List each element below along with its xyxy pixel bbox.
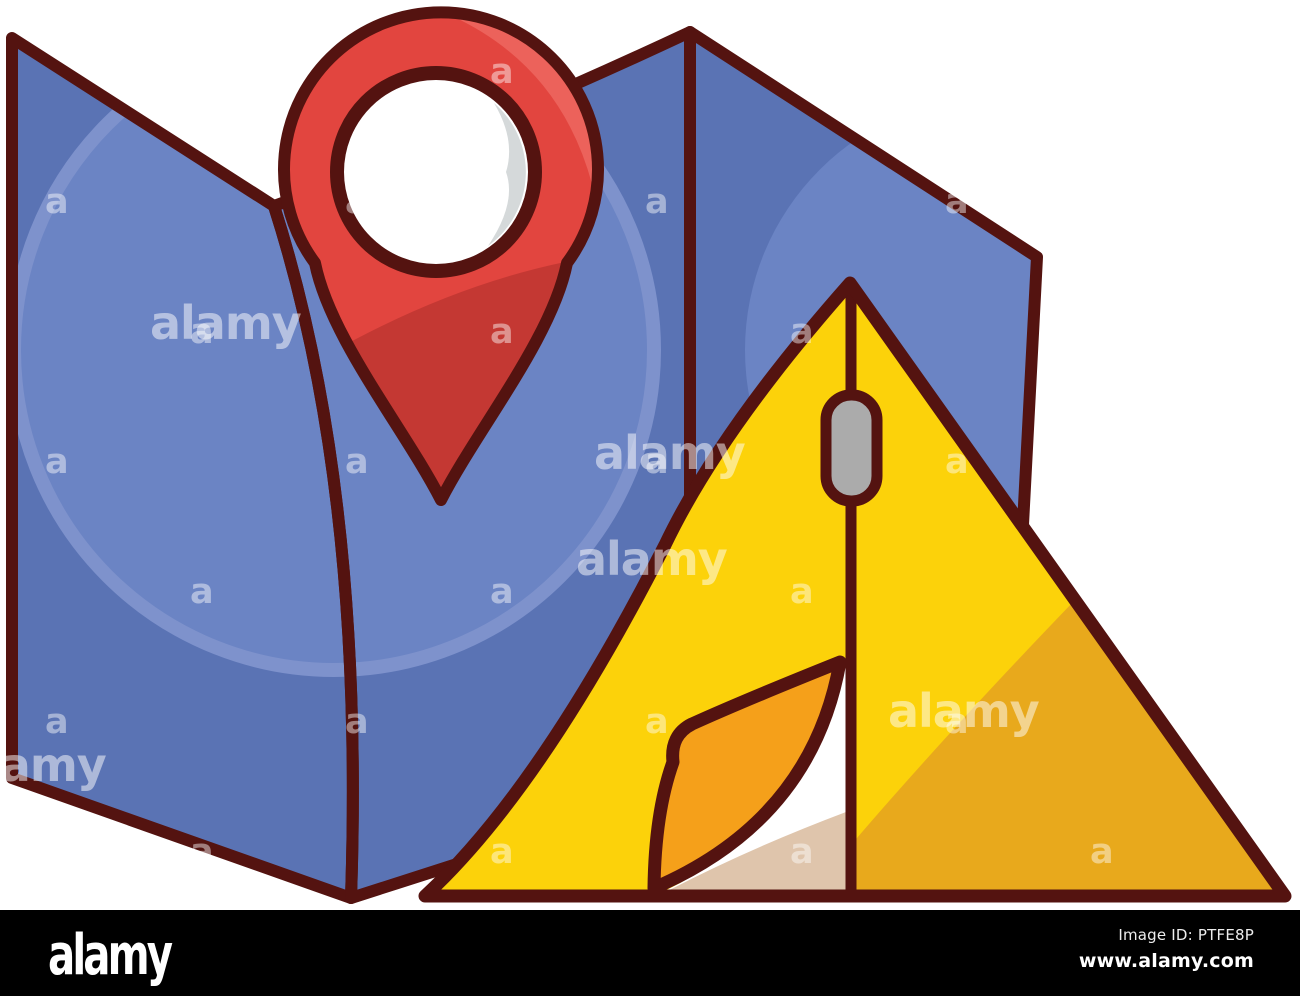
pin-center-ring (337, 73, 535, 271)
footer-meta: Image ID: PTFE8P www.alamy.com (1079, 926, 1254, 972)
stock-illustration-page: alamyalamyalamyalamyalamyaaaaaaaaaaaaaaa… (0, 0, 1300, 996)
image-id-text: Image ID: PTFE8P (1079, 926, 1254, 944)
alamy-logo: alamy (48, 928, 170, 984)
website-url-text: www.alamy.com (1079, 950, 1254, 972)
tent-zipper-pull (826, 395, 877, 501)
footer-bar: alamy Image ID: PTFE8P www.alamy.com (0, 910, 1300, 996)
travel-camping-illustration (0, 0, 1300, 996)
